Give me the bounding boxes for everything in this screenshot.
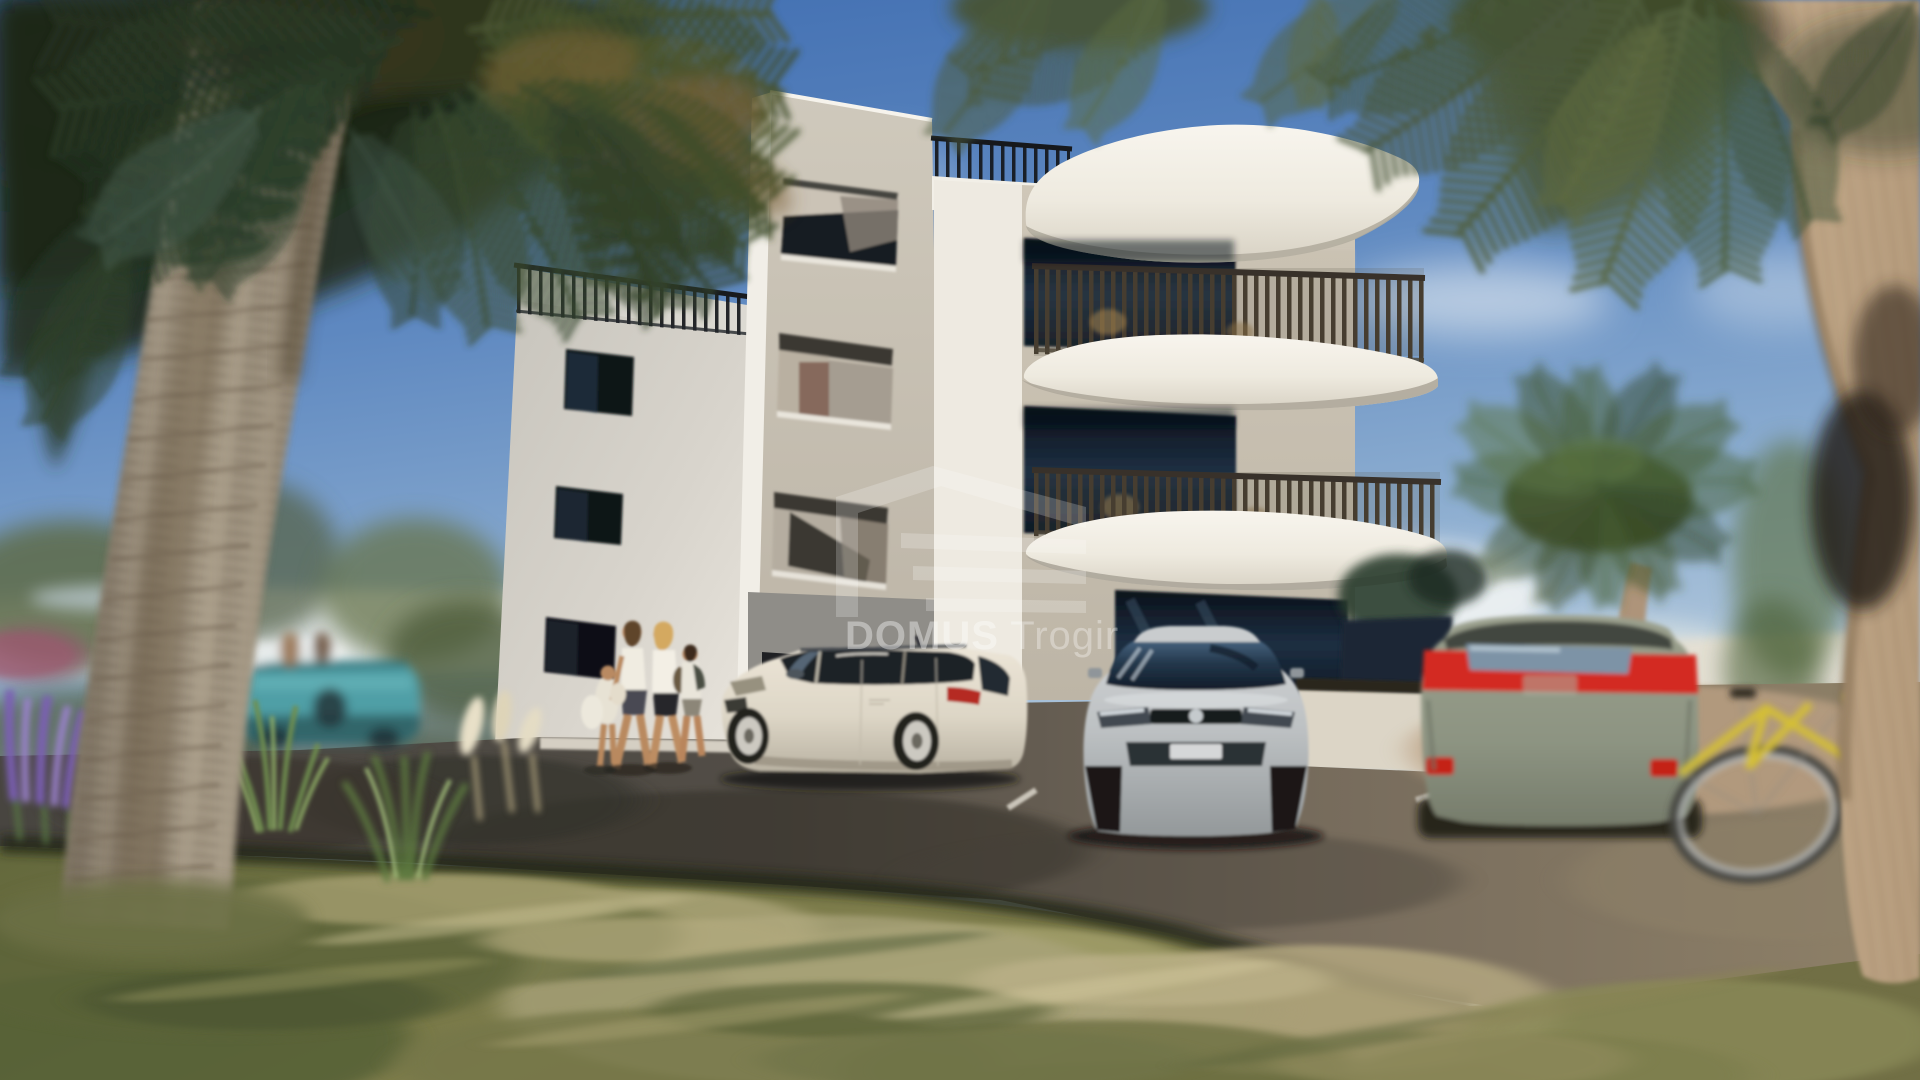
svg-text:DOMUS Trogir: DOMUS Trogir <box>845 614 1119 658</box>
